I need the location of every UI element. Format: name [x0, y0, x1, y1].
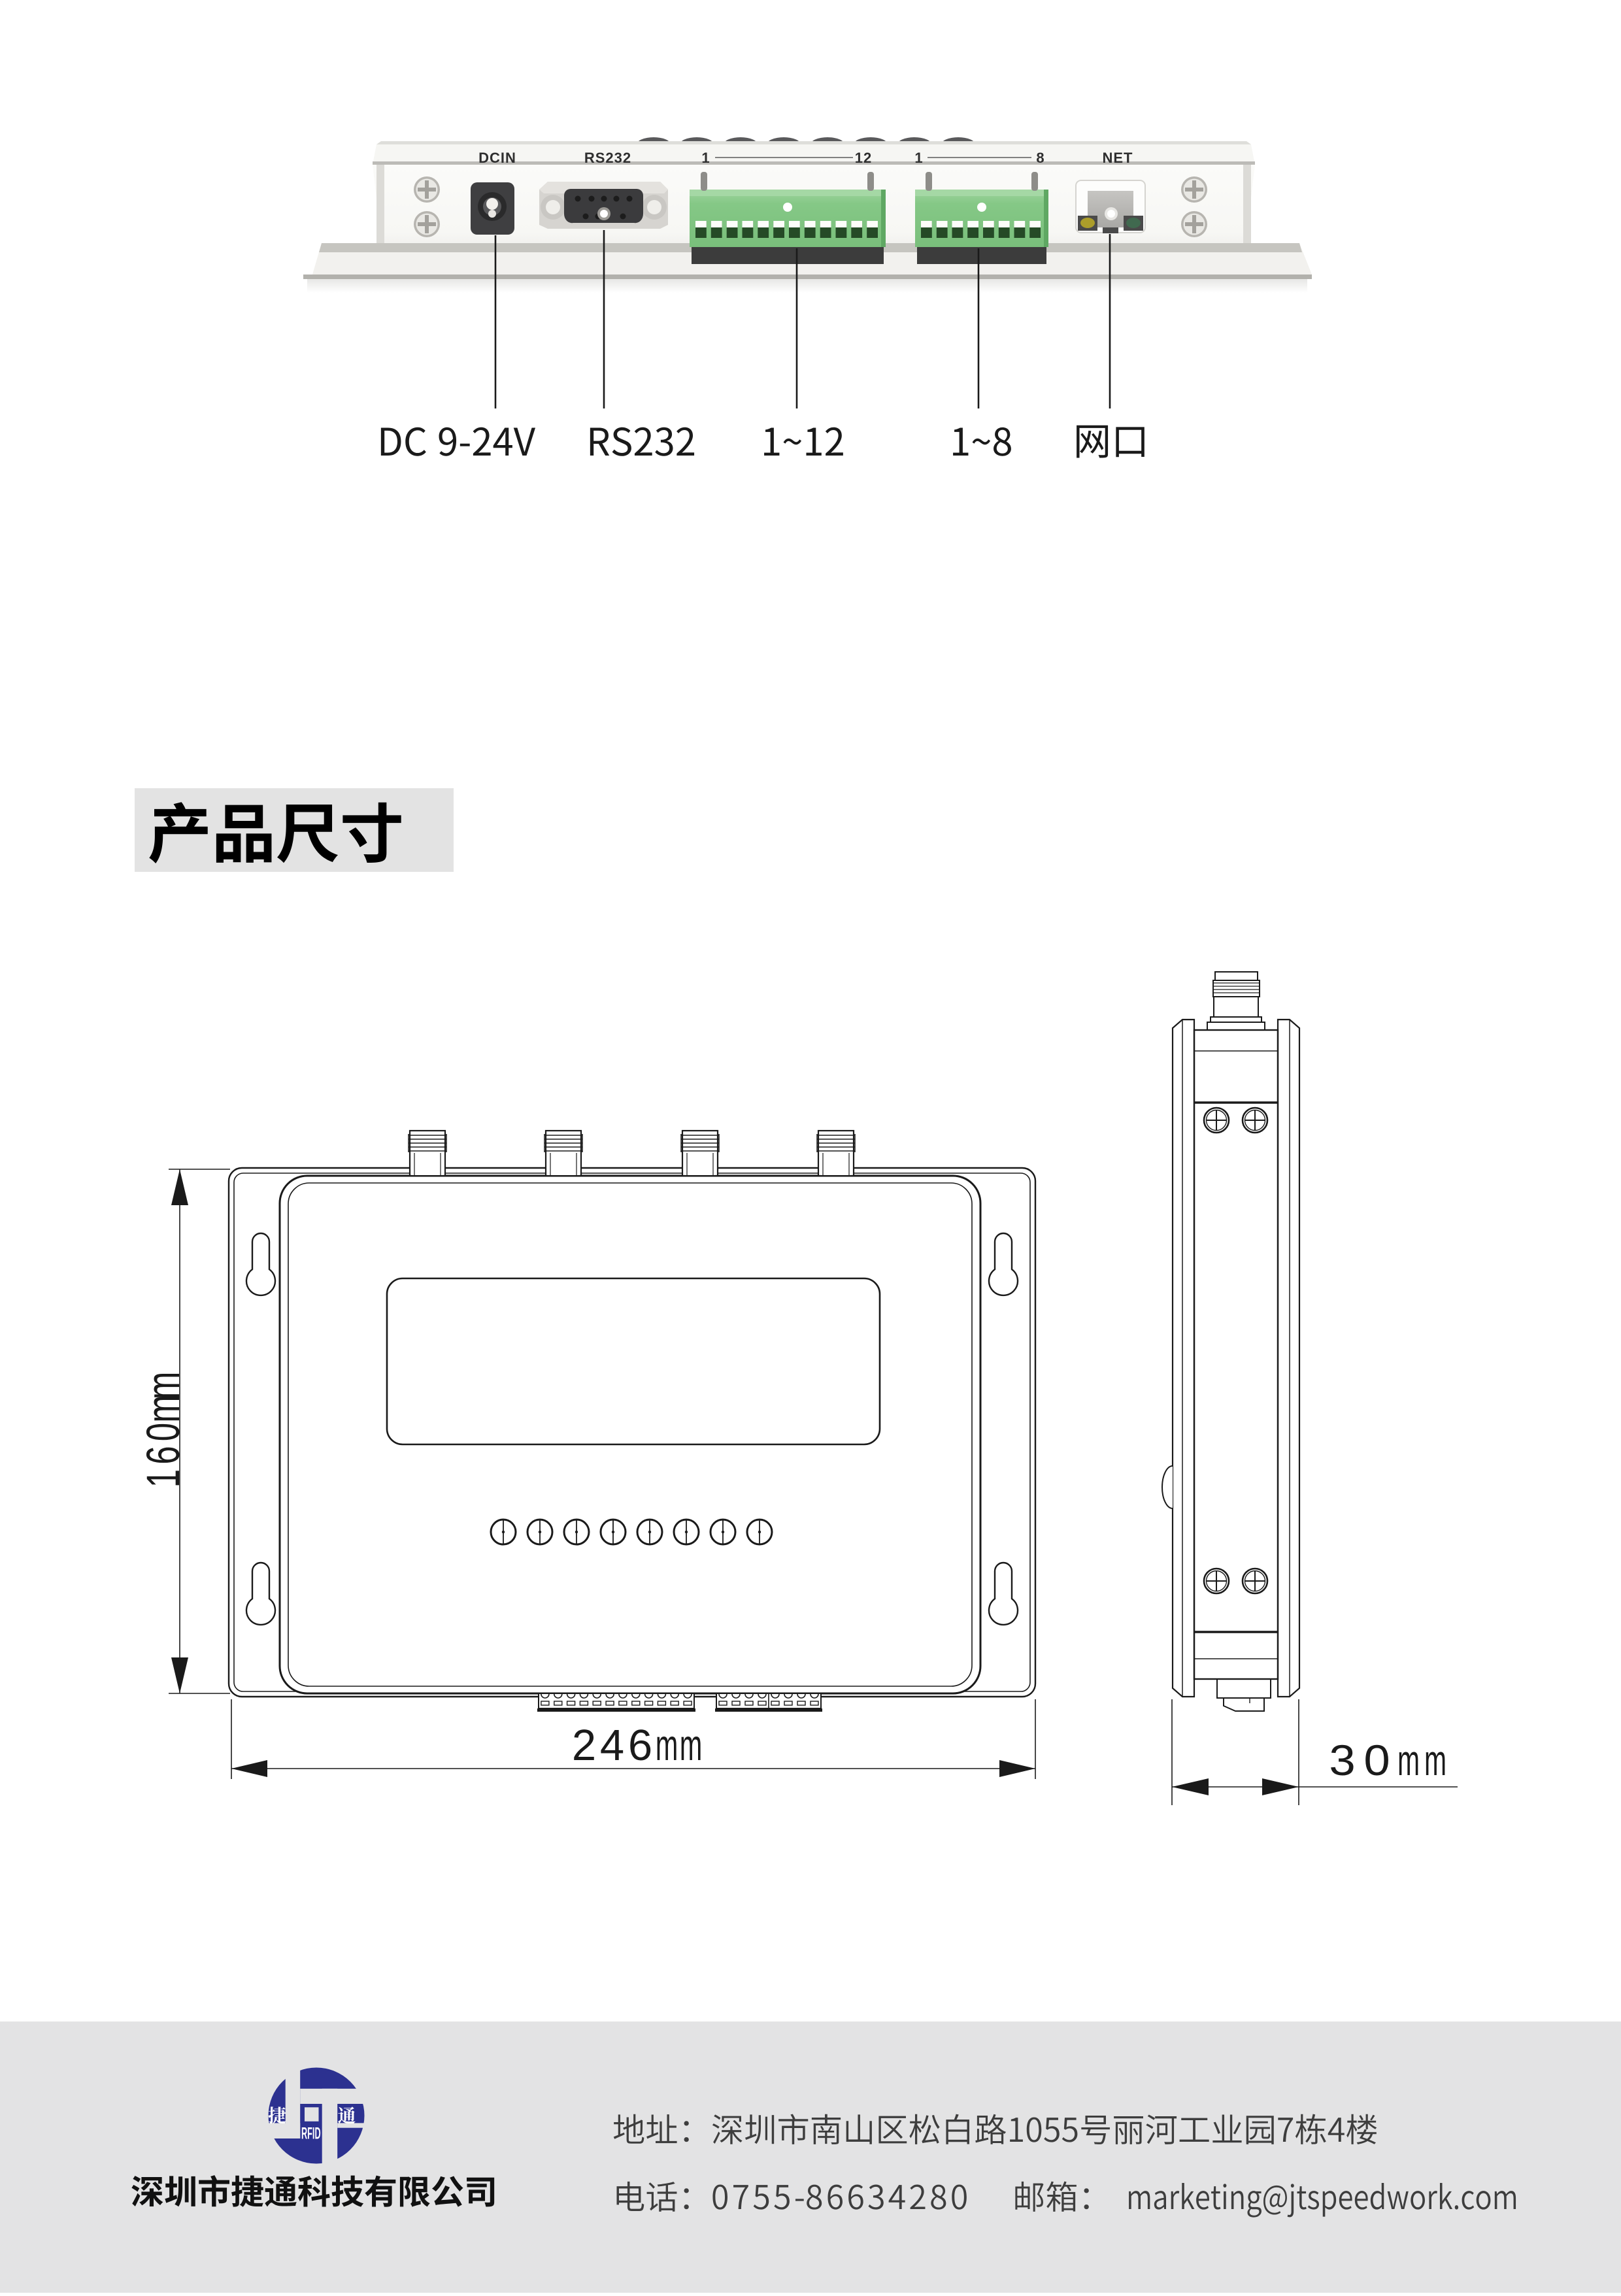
svg-text:1: 1: [138, 1469, 190, 1488]
svg-text:6: 6: [628, 1721, 652, 1770]
svg-text:m: m: [656, 1721, 678, 1770]
svg-text:m: m: [138, 1372, 190, 1400]
svg-text:RS232: RS232: [584, 150, 631, 166]
svg-text:1: 1: [701, 150, 710, 166]
svg-text:NET: NET: [1103, 150, 1133, 166]
svg-text:6: 6: [138, 1446, 190, 1464]
svg-text:m: m: [1424, 1736, 1446, 1785]
svg-text:1: 1: [914, 150, 923, 166]
svg-text:2: 2: [572, 1721, 596, 1770]
svg-text:DCIN: DCIN: [478, 150, 516, 166]
svg-text:m: m: [680, 1721, 703, 1770]
svg-text:0: 0: [1363, 1736, 1390, 1784]
svg-text:8: 8: [1036, 150, 1044, 166]
svg-text:3: 3: [1329, 1736, 1355, 1784]
svg-text:RFID: RFID: [301, 2125, 321, 2143]
svg-text:12: 12: [855, 150, 872, 166]
svg-text:0: 0: [138, 1423, 190, 1441]
svg-text:4: 4: [600, 1721, 624, 1770]
svg-text:m: m: [1397, 1736, 1420, 1785]
